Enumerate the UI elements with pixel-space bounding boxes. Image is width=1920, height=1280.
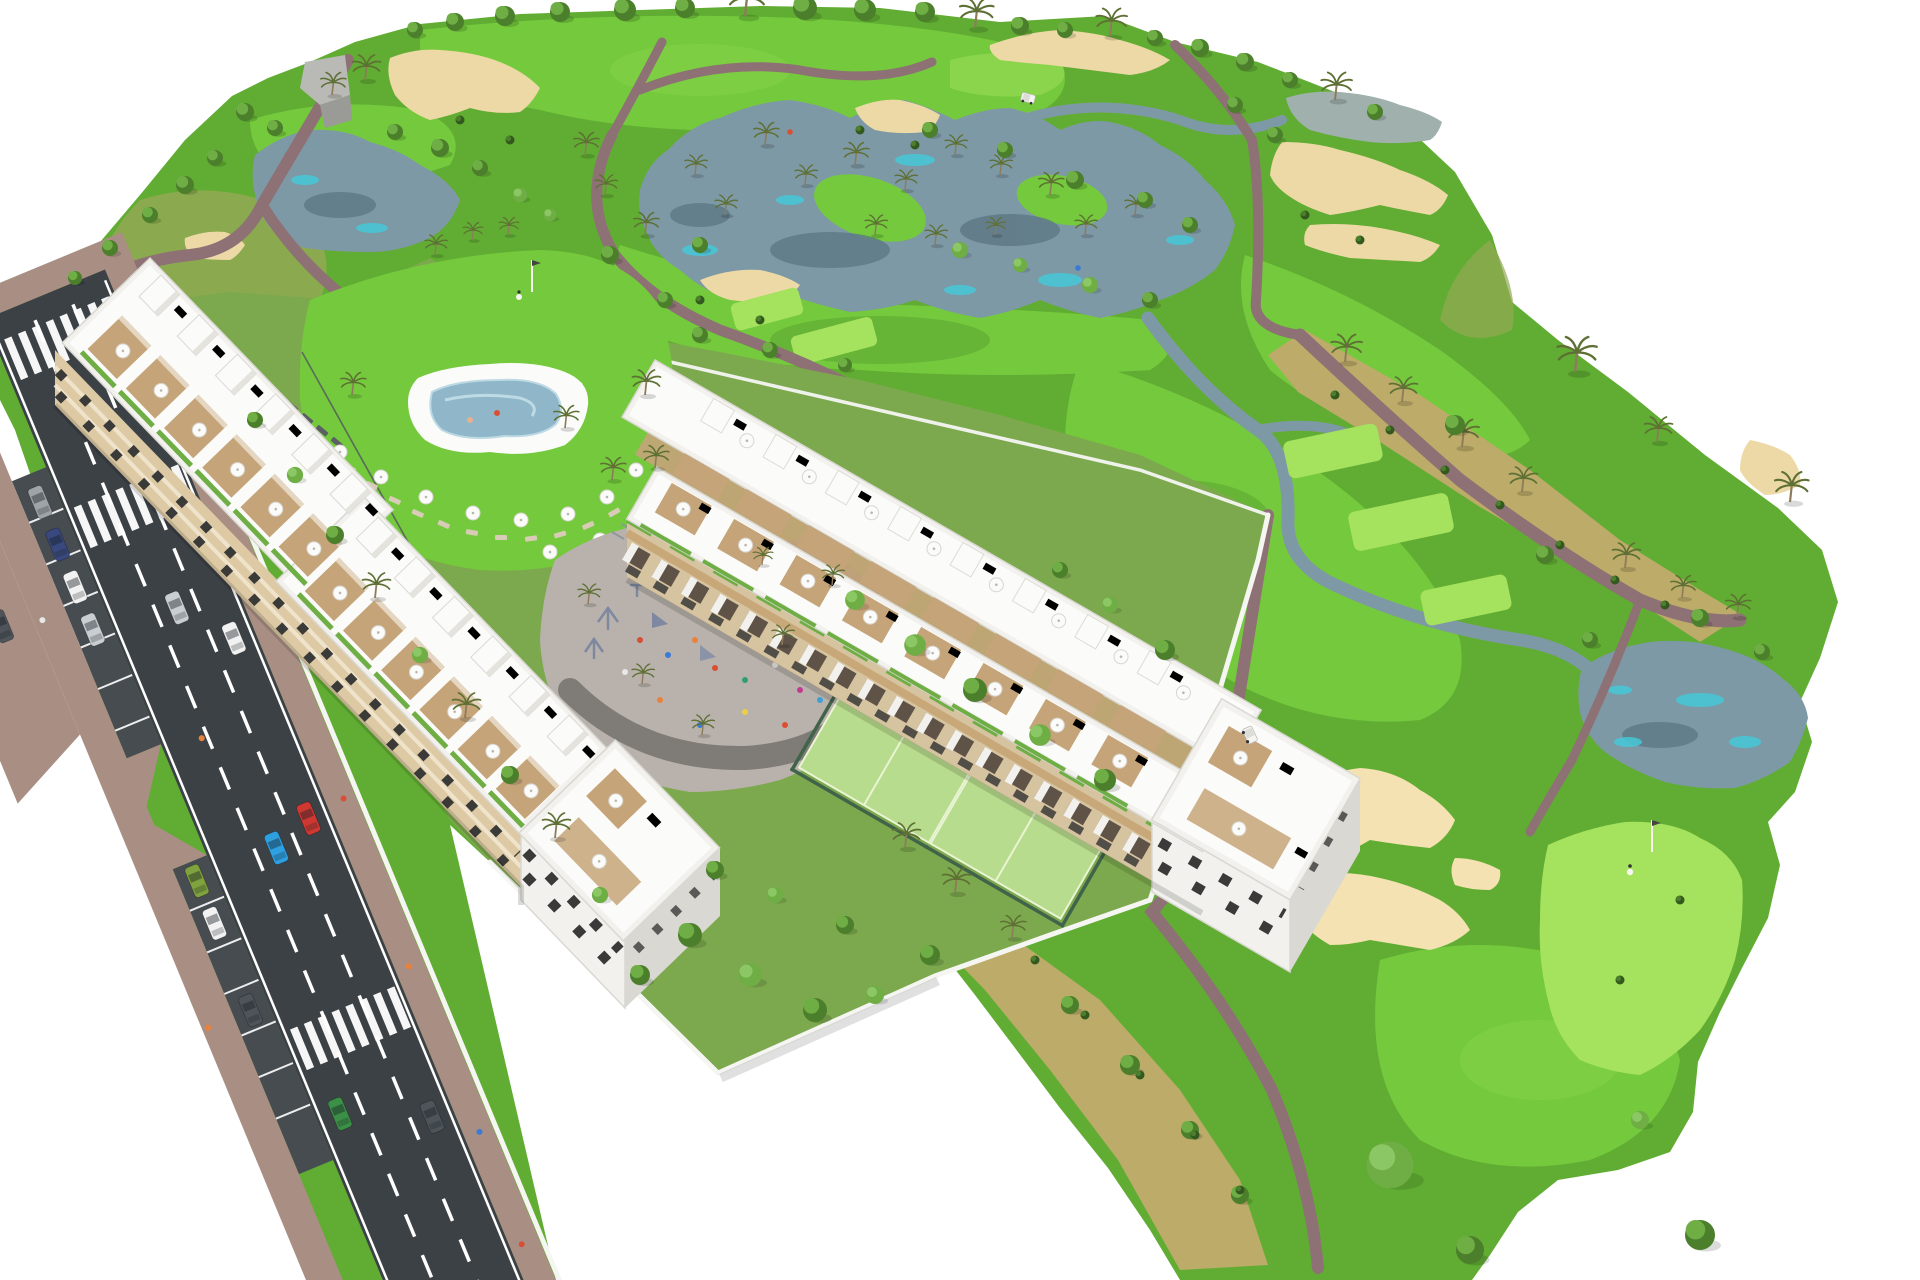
swimming-pool <box>430 380 561 438</box>
swimmer <box>467 417 473 423</box>
golfer-distant <box>787 129 793 135</box>
aerial-render <box>0 0 1920 1280</box>
swimmer <box>494 410 500 416</box>
render-stage <box>0 0 1920 1280</box>
putting-green-big <box>1540 822 1743 1075</box>
golfer-distant <box>1075 265 1081 271</box>
